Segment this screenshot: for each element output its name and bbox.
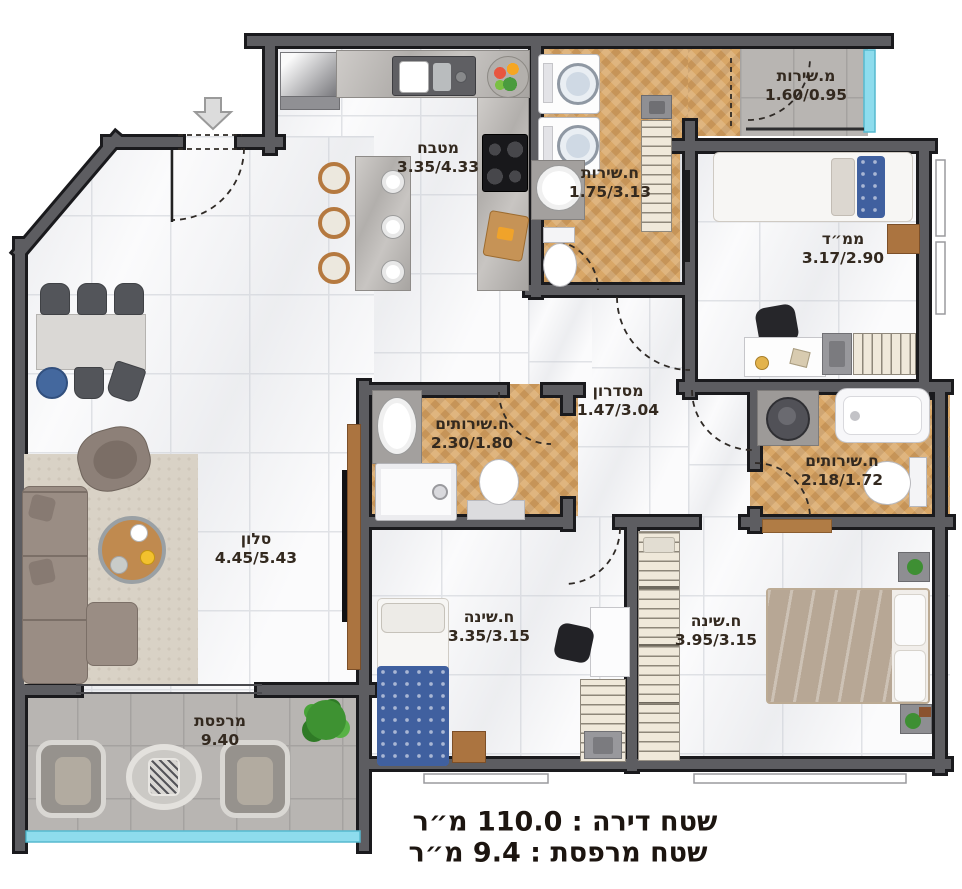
room-dims: 1.60/0.95 <box>765 86 847 105</box>
place-setting <box>381 215 405 239</box>
room-dims: 3.35/4.33 <box>397 158 479 177</box>
room-name: מטבח <box>397 139 479 158</box>
room-dims: 2.18/1.72 <box>801 471 883 490</box>
room-dims: 3.35/3.15 <box>448 627 530 646</box>
nightstand-item <box>919 707 931 717</box>
bath-mid-sink <box>377 397 417 455</box>
entry-arrow-icon <box>195 98 231 129</box>
coffee-table <box>98 516 166 584</box>
wardrobe-box-inner <box>593 737 613 754</box>
kitchen-corner-hood <box>280 52 338 98</box>
sink-basin <box>399 61 429 93</box>
room-name: ח.שירותים <box>801 452 883 471</box>
room-dims: 3.17/2.90 <box>802 249 884 268</box>
bath-mid-toilet-bowl <box>479 459 519 505</box>
single-bed-pillow <box>381 603 445 633</box>
dining-chair <box>77 283 107 315</box>
bed-pillow <box>894 594 926 646</box>
balcony-plant <box>306 700 346 740</box>
table-lattice <box>148 758 180 796</box>
room-label-bathroom-right: ח.שירותים 2.18/1.72 <box>801 452 883 490</box>
service-balcony-glass <box>864 50 875 132</box>
bathtub-drain <box>850 411 860 421</box>
room-label-kitchen: מטבח 3.35/4.33 <box>397 139 479 177</box>
sink-faucet <box>455 71 467 83</box>
sofa-chaise <box>86 602 138 666</box>
balcony-armchair <box>220 740 290 818</box>
washer-drum <box>557 63 599 105</box>
dining-chair <box>74 367 104 399</box>
room-label-corridor: מסדרון 1.47/3.04 <box>577 382 659 420</box>
kitchen-corner-shelf <box>280 96 340 110</box>
room-label-service-balcony: מ.שירות 1.60/0.95 <box>765 67 847 105</box>
bar-stool <box>318 162 350 194</box>
armchair-cushion <box>237 757 273 805</box>
balcony-glass-railing <box>26 831 360 842</box>
room-name: מרפסת <box>194 712 246 731</box>
dining-chair <box>114 283 144 315</box>
coffee-plate <box>110 556 128 574</box>
dining-stool <box>36 367 68 399</box>
single-bed-blanket <box>377 666 449 766</box>
wardrobe-towels <box>643 537 675 553</box>
stove <box>482 134 528 192</box>
room-dims: 1.47/3.04 <box>577 401 659 420</box>
small-bedroom-desk <box>590 607 630 677</box>
bath-top-toilet-bowl <box>543 243 577 287</box>
small-wardrobe-box <box>584 731 622 759</box>
mamad-wall-niche <box>685 170 690 262</box>
room-label-bathroom-middle: ח.שירותים 2.30/1.80 <box>431 415 513 453</box>
dining-chair <box>40 283 70 315</box>
room-name: סלון <box>215 530 297 549</box>
room-label-bathroom-top: ח.שירות 1.75/3.13 <box>569 164 651 202</box>
room-name: ח.שירות <box>569 164 651 183</box>
bed-pillow <box>894 650 926 702</box>
shower-drain <box>432 484 448 500</box>
double-bed-duvet <box>768 590 892 702</box>
apartment-area-text: שטח דירה : 110.0 מ״ר <box>413 807 718 838</box>
bedside-table <box>452 731 486 763</box>
kitchen-counter-right <box>477 97 529 291</box>
mamad-pillow-blue <box>857 156 885 218</box>
shelf-inner <box>829 341 845 367</box>
room-name: ח.שינה <box>448 608 530 627</box>
dining-table <box>36 314 146 370</box>
room-dims: 1.75/3.13 <box>569 183 651 202</box>
cutting-board <box>482 210 529 262</box>
armchair-seat <box>89 435 142 484</box>
bathtub <box>835 388 930 443</box>
room-dims: 3.95/3.15 <box>675 631 757 650</box>
master-dresser <box>762 519 832 533</box>
coffee-plate <box>130 524 148 542</box>
balcony-sliding-door <box>76 685 262 693</box>
room-name: מסדרון <box>577 382 659 401</box>
master-nightstand <box>900 704 932 734</box>
master-wardrobe <box>638 531 680 761</box>
bath-right-vessel-sink <box>766 397 810 441</box>
desk-item <box>789 348 810 368</box>
room-name: ממ״ד <box>802 230 884 249</box>
mamad-desk <box>744 337 826 377</box>
room-name: ח.שירותים <box>431 415 513 434</box>
mamad-wardrobe-hanging <box>853 333 916 375</box>
room-dims: 4.45/5.43 <box>215 549 297 568</box>
bath-top-toilet-tank <box>543 227 575 243</box>
sink-drainboard <box>433 63 451 91</box>
mamad-nightstand <box>887 224 920 254</box>
cabinet-box-inner <box>649 101 665 114</box>
vessel-highlight <box>778 407 796 425</box>
balcony-area-text: שטח מרפסת : 9.4 מ״ר <box>409 838 708 869</box>
room-name: ח.שינה <box>675 612 757 631</box>
sofa-pillow <box>28 558 56 586</box>
coffee-plate <box>140 550 155 565</box>
room-dims: 9.40 <box>194 731 246 750</box>
master-nightstand <box>898 552 930 582</box>
fruit-bowl <box>487 56 529 98</box>
room-label-bedroom-small: ח.שינה 3.35/3.15 <box>448 608 530 646</box>
room-label-living: סלון 4.45/5.43 <box>215 530 297 568</box>
armchair-cushion <box>55 757 91 805</box>
room-label-mamad: ממ״ד 3.17/2.90 <box>802 230 884 268</box>
bath-top-cabinet-box <box>641 95 672 119</box>
bar-stool <box>318 207 350 239</box>
washer-panel <box>543 63 553 103</box>
cheese <box>496 227 514 242</box>
mamad-wardrobe-shelves <box>822 333 852 375</box>
washing-machine <box>538 54 600 114</box>
room-label-bedroom-master: ח.שינה 3.95/3.15 <box>675 612 757 650</box>
floor-plan: מטבח 3.35/4.33 ח.שירות 1.75/3.13 מ.שירות… <box>0 0 962 889</box>
nightstand-plant <box>907 559 923 575</box>
room-dims: 2.30/1.80 <box>431 434 513 453</box>
room-label-balcony: מרפסת 9.40 <box>194 712 246 750</box>
kitchen-sink <box>392 56 476 96</box>
shower-tray <box>375 463 457 521</box>
tv-screen <box>342 470 347 622</box>
bath-right-toilet-tank <box>909 457 927 507</box>
desk-item <box>755 356 769 370</box>
tv-console <box>347 424 361 670</box>
dryer-panel <box>543 126 553 164</box>
place-setting <box>381 260 405 284</box>
balcony-table <box>126 744 202 810</box>
bar-stool <box>318 252 350 284</box>
room-name: מ.שירות <box>765 67 847 86</box>
mamad-pillow <box>831 158 855 216</box>
balcony-armchair <box>36 740 106 818</box>
